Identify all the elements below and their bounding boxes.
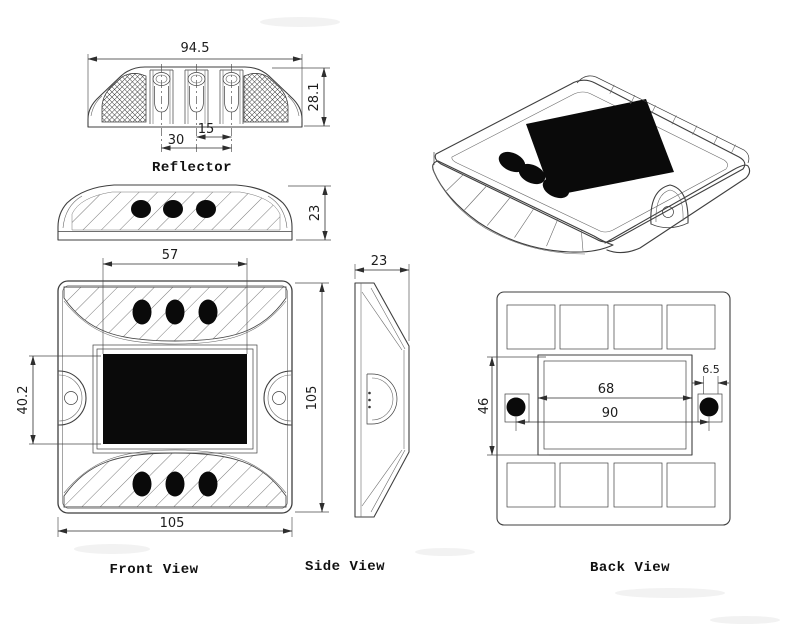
battery-cover-inner: [544, 361, 686, 449]
dim-reflector-width: 94.5: [181, 41, 210, 56]
side-view: 23 Side View: [305, 254, 409, 575]
dim-led-pitch-outer: 30: [168, 133, 185, 148]
back-view-label: Back View: [590, 560, 670, 576]
dim-back-inner-width: 68: [598, 382, 615, 397]
led-oval: [166, 300, 185, 325]
dim-side-thickness: 23: [371, 254, 388, 269]
mounting-hole-right: [700, 398, 719, 417]
reflector-panel-right: [244, 73, 288, 122]
drawing-svg: 94.5 28.1 15 30 Reflector 23: [0, 0, 790, 630]
dim-overall-height: 105: [305, 386, 320, 411]
reflector-view-label: Reflector: [152, 160, 232, 176]
reflector-view: 94.5 28.1 15 30 Reflector: [88, 41, 330, 176]
dome-profile-view: 23: [58, 185, 331, 240]
dim-hole-span: 90: [602, 406, 619, 421]
led-dot: [196, 200, 216, 218]
dim-hole-width: 6.5: [702, 363, 720, 376]
side-view-label: Side View: [305, 559, 385, 575]
mounting-hole-left: [507, 398, 526, 417]
mounting-hole: [65, 392, 78, 405]
back-ribs-bottom: [507, 463, 715, 507]
dim-led-pitch-inner: 15: [198, 122, 215, 137]
mounting-hole: [273, 392, 286, 405]
technical-drawing-canvas: 94.5 28.1 15 30 Reflector 23: [0, 0, 790, 630]
led-oval: [133, 472, 152, 497]
led-dot: [163, 200, 183, 218]
led-oval: [166, 472, 185, 497]
front-view: 57 40.2 105 105 Front View: [16, 248, 329, 578]
back-view: 68 90 46 6.5 Back View: [477, 292, 730, 576]
perspective-view: [433, 76, 750, 254]
battery-cover-outer: [538, 355, 692, 455]
led-oval: [199, 300, 218, 325]
mounting-ear-right: [264, 371, 291, 425]
dim-back-inner-height: 46: [477, 398, 492, 415]
led-columns: [150, 64, 243, 152]
back-ribs-top: [507, 305, 715, 349]
reflector-panel-left: [102, 73, 146, 122]
dim-panel-height: 40.2: [16, 386, 31, 415]
dim-dome-height: 23: [308, 205, 323, 222]
led-dot: [131, 200, 151, 218]
dim-panel-width: 57: [162, 248, 179, 263]
dim-overall-width: 105: [160, 516, 185, 531]
front-view-label: Front View: [109, 562, 198, 578]
solar-panel: [103, 354, 247, 444]
dim-reflector-height: 28.1: [307, 83, 322, 112]
mounting-ear-left: [59, 371, 86, 425]
led-oval: [199, 472, 218, 497]
led-oval: [133, 300, 152, 325]
side-ear-profile: [367, 374, 397, 424]
